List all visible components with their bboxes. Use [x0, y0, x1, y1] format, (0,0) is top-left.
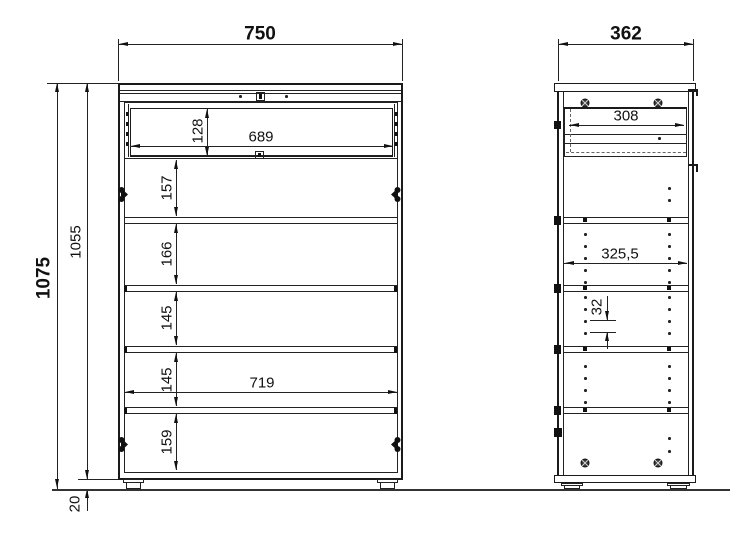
drawer-bottom-line: [564, 143, 687, 144]
shelf-pin-hole: [668, 187, 671, 190]
shelf-line: [563, 223, 688, 224]
shelf-pin-hole: [668, 199, 671, 202]
shelf-support: [554, 216, 561, 225]
shelf-cam: [667, 408, 671, 412]
shelf-pin-hole: [584, 365, 587, 368]
shelf-pin-hole: [668, 296, 671, 299]
dim-label-drawer-depth: 308: [613, 109, 638, 124]
shelf-support: [554, 284, 561, 293]
shelf-cam: [667, 218, 671, 222]
shelf-pin-hole: [584, 308, 587, 311]
shelf-pin-hole: [668, 377, 671, 380]
shelf-pin-hole: [668, 257, 671, 260]
screw-icon: [580, 458, 590, 468]
shelf-pin-hole: [668, 245, 671, 248]
shelf-pin-hole: [584, 269, 587, 272]
shelf-pin-hole: [584, 377, 587, 380]
drawer-hidden-line: [570, 109, 571, 152]
extension-line: [590, 332, 616, 333]
shelf-pin-hole: [584, 245, 587, 248]
shelf-cam: [583, 286, 587, 290]
top-panel: [554, 83, 696, 92]
ground-line: [52, 489, 730, 491]
shelf-line: [563, 291, 688, 292]
shelf-pin-hole: [668, 437, 671, 440]
shelf-pin-hole: [584, 389, 587, 392]
wall-hook: [696, 166, 698, 172]
shelf-cam: [583, 408, 587, 412]
side-view: 308 325,5 32: [0, 0, 743, 557]
dimension-arrow: [559, 42, 568, 46]
dimension-line: [569, 125, 684, 126]
wall-hook: [696, 91, 698, 96]
wall-inner-line: [688, 92, 689, 475]
shelf-pin-hole: [668, 365, 671, 368]
shelf-pin-hole: [584, 401, 587, 404]
dimension-arrow: [684, 42, 693, 46]
furniture-assembly-drawing: 750 689 128 719 157 166 145 145: [0, 0, 743, 557]
extension-line: [693, 39, 694, 81]
shelf-cam: [583, 218, 587, 222]
shelf-pin-hole: [584, 296, 587, 299]
shelf-pin-hole: [668, 332, 671, 335]
wall-bracket: [554, 428, 562, 437]
shelf-line: [563, 413, 688, 414]
screw-icon: [653, 458, 663, 468]
shelf-pin-hole: [584, 257, 587, 260]
wall-outer-line: [692, 92, 694, 475]
shelf-pin-hole: [584, 332, 587, 335]
shelf-pin-hole: [584, 320, 587, 323]
drawer-hidden-line: [566, 152, 686, 153]
shelf-line: [563, 352, 688, 353]
drawer-bottom-line: [564, 134, 687, 135]
dimension-arrow: [565, 261, 574, 265]
dimension-arrow: [570, 123, 579, 127]
dowel-hole: [658, 137, 661, 140]
shelf-support: [554, 345, 561, 354]
shelf-cam: [583, 347, 587, 351]
shelf-pin-hole: [668, 269, 671, 272]
dimension-arrow: [678, 261, 687, 265]
shelf-cam: [667, 286, 671, 290]
dim-label-hole-pitch: 32: [590, 299, 605, 316]
shelf-pin-hole: [584, 233, 587, 236]
wall-bracket: [554, 121, 561, 129]
dim-label-total-depth: 362: [610, 25, 642, 44]
dimension-line: [564, 263, 687, 264]
dim-label-inner-depth: 325,5: [601, 247, 639, 262]
shelf-pin-hole: [668, 450, 671, 453]
plinth: [554, 475, 696, 483]
shelf-pin-hole: [668, 320, 671, 323]
shelf-pin-hole: [668, 308, 671, 311]
shelf-pin-hole: [668, 389, 671, 392]
shelf-support: [554, 406, 561, 415]
shelf-pin-hole: [584, 281, 587, 284]
shelf-pin-hole: [668, 401, 671, 404]
shelf-cam: [667, 347, 671, 351]
extension-line: [590, 320, 616, 321]
dimension-arrow: [675, 123, 684, 127]
shelf-pin-hole: [668, 233, 671, 236]
dimension-arrow: [605, 332, 609, 341]
shelf-pin-hole: [668, 281, 671, 284]
